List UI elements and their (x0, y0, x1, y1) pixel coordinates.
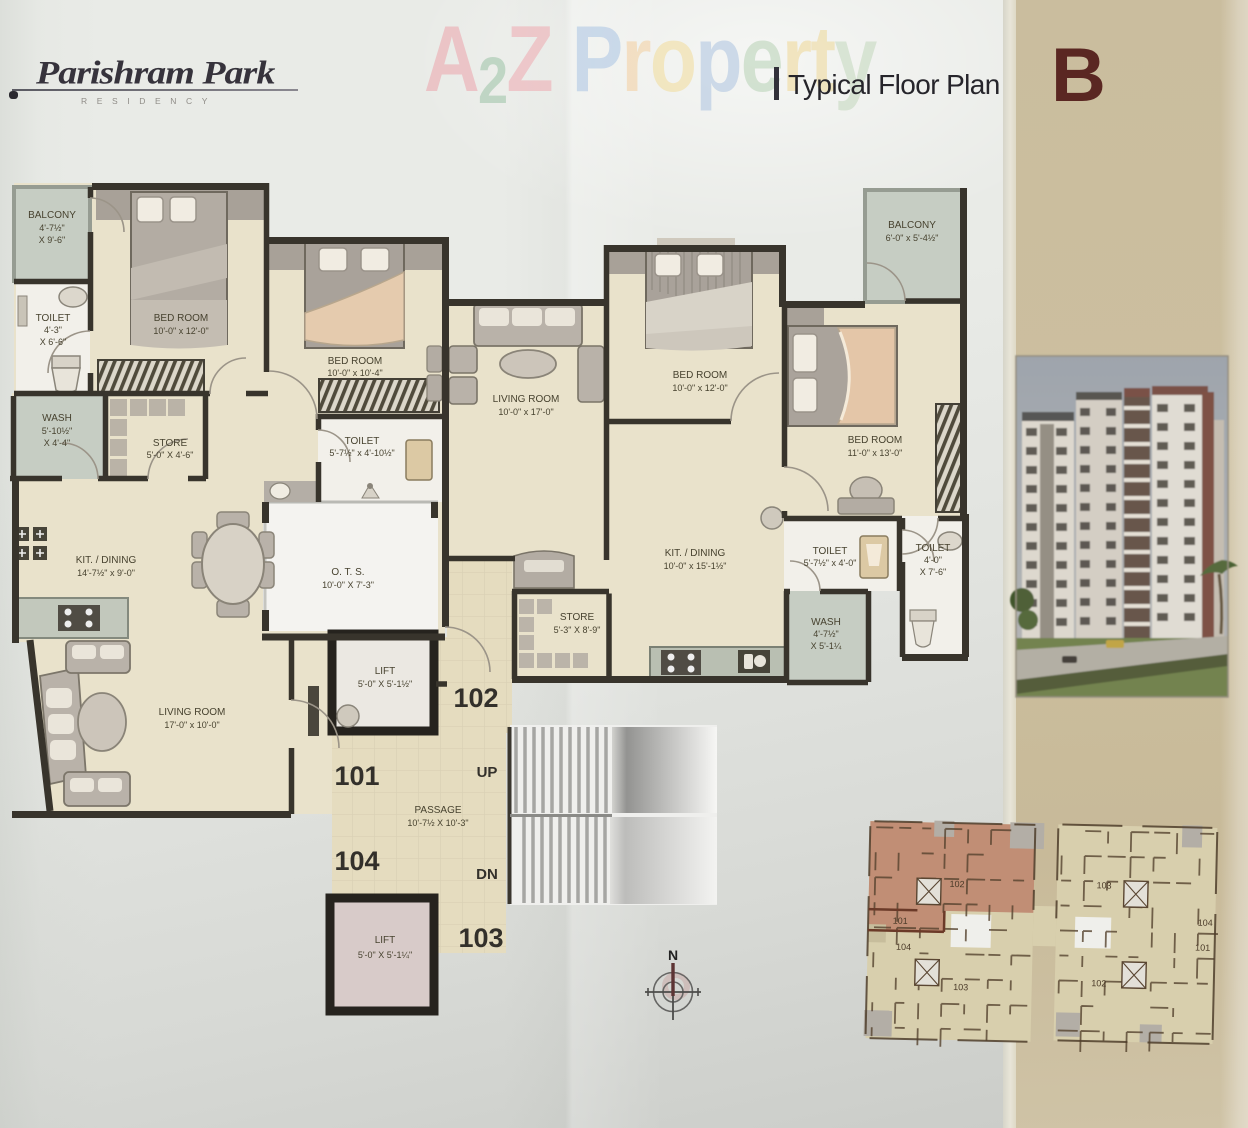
svg-text:X 6'-6": X 6'-6" (40, 337, 66, 347)
svg-text:LIVING ROOM: LIVING ROOM (159, 707, 226, 718)
svg-text:102: 102 (453, 683, 498, 713)
svg-text:X 7'-6": X 7'-6" (920, 567, 946, 577)
svg-text:X 4'-4": X 4'-4" (44, 438, 70, 448)
svg-text:X 5'-1¼: X 5'-1¼ (811, 641, 842, 651)
svg-text:UP: UP (477, 764, 498, 781)
svg-text:N: N (668, 947, 678, 963)
svg-text:101: 101 (893, 916, 908, 926)
svg-text:10'-0" x 17'-0": 10'-0" x 17'-0" (498, 407, 553, 417)
svg-text:STORE: STORE (153, 438, 188, 449)
svg-text:WASH: WASH (42, 413, 72, 424)
svg-text:TOILET: TOILET (345, 436, 380, 447)
svg-text:103: 103 (458, 923, 503, 953)
svg-text:5'-7½" x 4'-10½": 5'-7½" x 4'-10½" (329, 448, 394, 458)
svg-text:10'-0" X 7'-3": 10'-0" X 7'-3" (322, 580, 374, 590)
svg-text:LIFT: LIFT (375, 935, 396, 946)
svg-text:5'-0" X 5'-1¼": 5'-0" X 5'-1¼" (358, 950, 412, 960)
svg-text:10'-0" x 12'-0": 10'-0" x 12'-0" (153, 326, 208, 336)
svg-text:KIT. / DINING: KIT. / DINING (76, 555, 137, 566)
svg-text:14'-7½" x 9'-0": 14'-7½" x 9'-0" (77, 568, 135, 578)
svg-text:WASH: WASH (811, 617, 841, 628)
svg-text:10'-0" x 12'-0": 10'-0" x 12'-0" (672, 383, 727, 393)
svg-text:101: 101 (334, 761, 379, 791)
svg-text:104: 104 (334, 846, 379, 876)
svg-text:BED ROOM: BED ROOM (848, 435, 902, 446)
svg-text:BED ROOM: BED ROOM (154, 313, 208, 324)
svg-text:LIVING ROOM: LIVING ROOM (493, 394, 560, 405)
svg-text:101: 101 (1195, 943, 1210, 953)
svg-text:103: 103 (1096, 880, 1111, 890)
svg-text:KIT. / DINING: KIT. / DINING (665, 548, 726, 559)
svg-text:102: 102 (949, 879, 964, 889)
svg-text:4'-7½": 4'-7½" (39, 223, 64, 233)
svg-text:X 9'-6": X 9'-6" (39, 235, 65, 245)
svg-text:LIFT: LIFT (375, 666, 396, 677)
svg-text:5'-0" X 5'-1½": 5'-0" X 5'-1½" (358, 679, 412, 689)
svg-text:DN: DN (476, 866, 498, 883)
svg-text:104: 104 (1198, 918, 1213, 928)
svg-text:10'-0" x 10'-4": 10'-0" x 10'-4" (327, 368, 382, 378)
svg-text:BED ROOM: BED ROOM (673, 370, 727, 381)
svg-text:17'-0" x 10'-0": 17'-0" x 10'-0" (164, 720, 219, 730)
svg-text:BALCONY: BALCONY (28, 210, 76, 221)
svg-text:BED ROOM: BED ROOM (328, 356, 382, 367)
svg-text:TOILET: TOILET (36, 313, 71, 324)
svg-text:5'-7½" x 4'-0": 5'-7½" x 4'-0" (804, 558, 857, 568)
svg-text:4'-7½": 4'-7½" (813, 629, 838, 639)
svg-text:5'-10½": 5'-10½" (42, 426, 72, 436)
svg-text:104: 104 (896, 942, 911, 952)
svg-text:BALCONY: BALCONY (888, 220, 936, 231)
svg-text:6'-0" x 5'-4½": 6'-0" x 5'-4½" (886, 233, 939, 243)
svg-text:10'-7½ X 10'-3": 10'-7½ X 10'-3" (407, 818, 468, 828)
svg-text:5'-0" X 4'-6": 5'-0" X 4'-6" (147, 450, 194, 460)
svg-text:PASSAGE: PASSAGE (414, 805, 461, 816)
svg-text:4'-0": 4'-0" (924, 555, 942, 565)
svg-text:O. T. S.: O. T. S. (331, 567, 364, 578)
svg-text:10'-0" x 15'-1½": 10'-0" x 15'-1½" (664, 561, 727, 571)
svg-text:TOILET: TOILET (813, 546, 848, 557)
svg-text:5'-3" X 8'-9": 5'-3" X 8'-9" (554, 625, 601, 635)
svg-text:TOILET: TOILET (916, 543, 951, 554)
svg-text:102: 102 (1091, 978, 1106, 988)
svg-text:STORE: STORE (560, 612, 595, 623)
svg-text:103: 103 (953, 982, 968, 992)
svg-text:4'-3": 4'-3" (44, 325, 62, 335)
svg-text:11'-0" x 13'-0": 11'-0" x 13'-0" (848, 448, 903, 458)
